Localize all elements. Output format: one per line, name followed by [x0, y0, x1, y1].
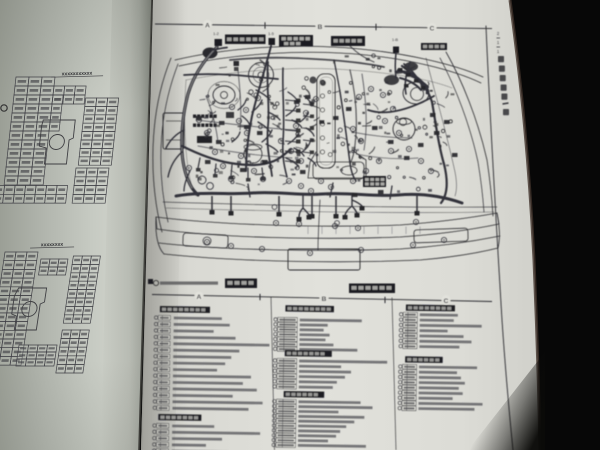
svg-text:B: B — [322, 296, 327, 303]
svg-text:C: C — [430, 25, 435, 32]
svg-text:C: C — [444, 298, 449, 305]
svg-text:1-B: 1-B — [392, 37, 399, 42]
svg-text:B: B — [318, 24, 323, 31]
svg-text:A: A — [197, 294, 202, 301]
svg-text:1-2: 1-2 — [213, 31, 220, 36]
svg-text:A: A — [205, 22, 210, 29]
svg-text:1-5: 1-5 — [268, 31, 275, 36]
